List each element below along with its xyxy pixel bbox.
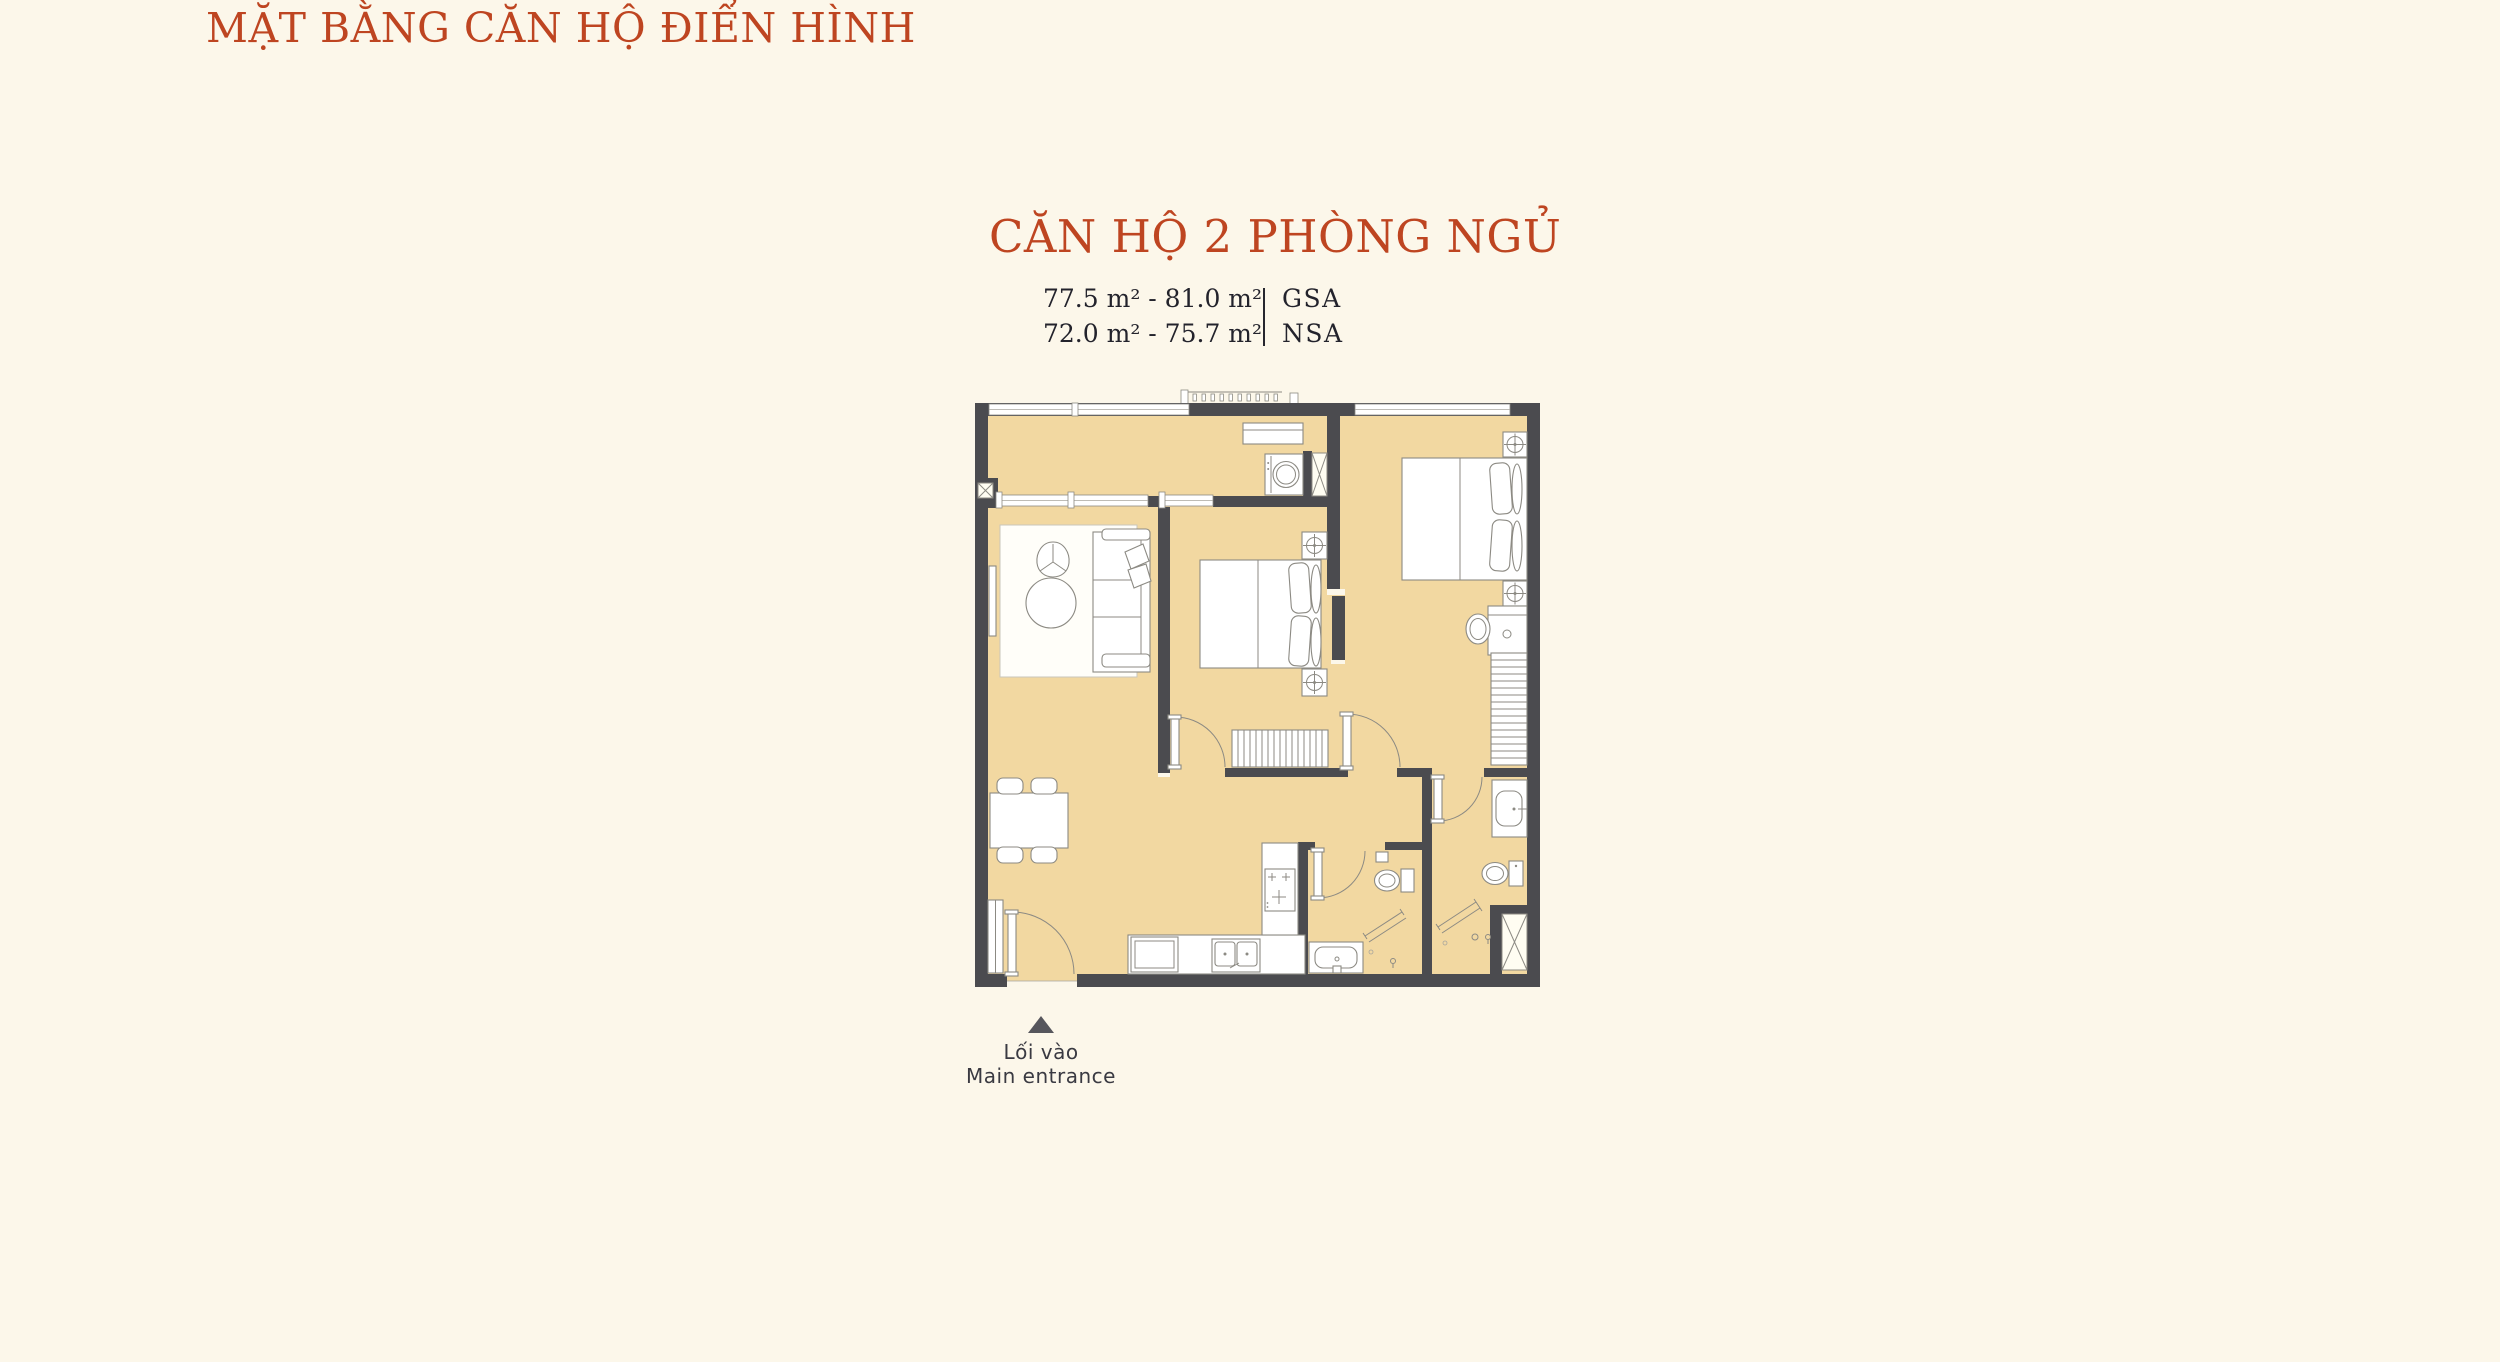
entrance-label-vi: Lối vào [911,1040,1171,1064]
area-label-nsa: NSA [1282,316,1344,351]
toilet-icon [1375,869,1415,892]
area-divider [1263,288,1265,346]
chair-icon [997,847,1023,863]
area-value-nsa: 72.0 m² - 75.7 m² [1043,316,1248,351]
nightstand-lamp-icon [1302,532,1327,559]
bed-icon [1200,560,1321,668]
area-values: 77.5 m² - 81.0 m² 72.0 m² - 75.7 m² [1043,281,1248,351]
area-value-gsa: 77.5 m² - 81.0 m² [1043,281,1248,316]
entrance-label-en: Main entrance [911,1064,1171,1088]
entrance-arrow-icon [1028,1016,1054,1033]
chair-icon [997,778,1023,794]
sofa-icon [1093,529,1151,672]
area-label-gsa: GSA [1282,281,1344,316]
nightstand-lamp-icon [1302,669,1327,696]
page-title: MẶT BẰNG CĂN HỘ ĐIỂN HÌNH [206,4,916,52]
dining-table-icon [990,793,1068,848]
toilet-icon [1482,861,1523,886]
cistern-box [1376,852,1388,862]
chair-icon [1031,778,1057,794]
bathroom-sink-icon [1309,942,1363,973]
unit-name: CĂN HỘ 2 PHÒNG NGỦ [989,210,1389,263]
area-labels: GSA NSA [1282,281,1344,351]
shelf-icon [1243,423,1303,444]
bed-icon [1402,458,1527,580]
entry-cabinet-icon [988,900,1003,973]
stove-icon [1265,869,1295,911]
fridge-icon [1131,937,1178,972]
area-block: 77.5 m² - 81.0 m² 72.0 m² - 75.7 m² GSA … [1043,281,1344,351]
living-room [989,525,1151,677]
coffee-table-icon [1026,578,1076,628]
bathroom-sink-icon [1492,780,1527,837]
vanity-desk-icon [1488,606,1527,655]
nightstand-lamp-icon [1503,432,1527,457]
bench-icon [1232,730,1328,767]
wardrobe-icon [1491,653,1527,765]
nightstand-lamp-icon [1503,581,1527,606]
stool-icon [1466,614,1490,644]
floor-plan [975,389,1540,987]
chair-icon [1031,847,1057,863]
tv-console-icon [989,566,996,636]
plant-icon [1037,542,1069,577]
washing-machine-icon [1265,454,1303,495]
kitchen-sink-icon [1212,939,1260,972]
